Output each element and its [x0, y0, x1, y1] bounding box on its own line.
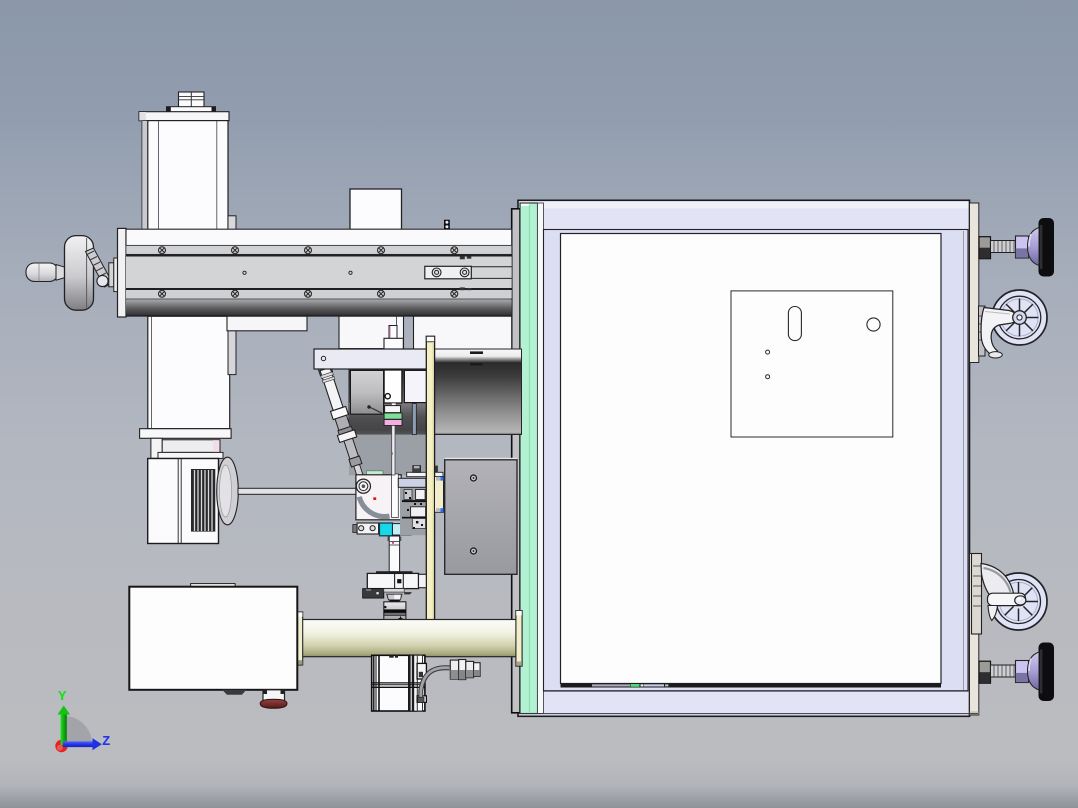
- svg-text:Y: Y: [58, 689, 67, 705]
- svg-text:Z: Z: [102, 734, 110, 750]
